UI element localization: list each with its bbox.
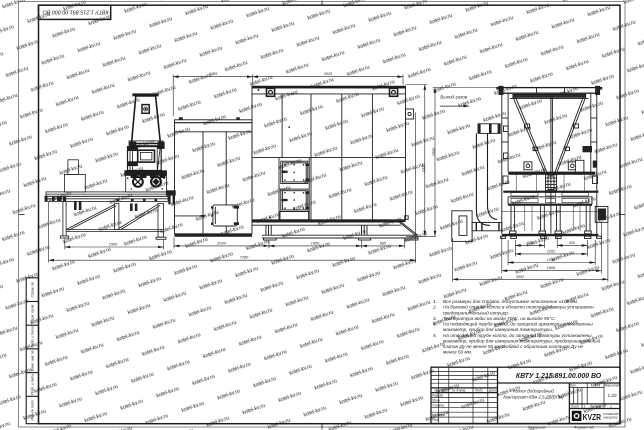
svg-text:Утв.: Утв. — [432, 418, 439, 422]
svg-text:КУЗНЕЦКИЙ: КУЗНЕЦКИЙ — [603, 412, 619, 416]
svg-text:685: 685 — [380, 241, 387, 245]
svg-text:Разраб.: Разраб. — [432, 394, 444, 398]
svg-text:630: 630 — [527, 241, 534, 245]
svg-text:2034: 2034 — [216, 241, 225, 245]
svg-text:Температура воды на входе 70°С: Температура воды на входе 70°С, на выход… — [443, 316, 556, 321]
svg-text:Листов: Листов — [589, 405, 602, 409]
svg-text:На подводящей трубе котла, до: На подводящей трубе котла, до запорной а… — [443, 321, 593, 327]
svg-text:№ докум.: № докум. — [452, 389, 466, 393]
svg-text:1: 1 — [610, 405, 612, 409]
svg-text:Масштаб: Масштаб — [605, 384, 620, 388]
svg-text:1485: 1485 — [209, 72, 218, 76]
svg-text:Подп. и дата: Подп. и дата — [31, 326, 35, 347]
svg-text:КВТУ 1.215.891.00.000 ВО: КВТУ 1.215.891.00.000 ВО — [516, 373, 602, 380]
svg-text:манометр, прибор для измерения: манометр, прибор для измерения температу… — [443, 327, 553, 332]
svg-text:1950: 1950 — [311, 241, 320, 245]
svg-text:Взам. инв. №: Взам. инв. № — [31, 350, 35, 371]
svg-text:Лист: Лист — [440, 389, 450, 393]
svg-text:Перв. прим.: Перв. прим. — [31, 304, 35, 323]
svg-text:Т.контр.: Т.контр. — [432, 403, 445, 407]
svg-text:2950: 2950 — [432, 147, 436, 157]
svg-text:На боковой стенке котла в обла: На боковой стенке котла в области топочн… — [443, 304, 594, 310]
svg-text:1906: 1906 — [547, 266, 556, 270]
svg-text:Лист: Лист — [570, 405, 580, 409]
svg-text:Масса: Масса — [591, 384, 601, 388]
svg-text:630: 630 — [569, 241, 576, 245]
svg-text:предохранительный штуцер.: предохранительный штуцер. — [443, 309, 509, 315]
svg-text:1.: 1. — [433, 299, 437, 304]
svg-text:4.: 4. — [433, 322, 437, 327]
svg-text:Все размеры для справок, допус: Все размеры для справок, допустимое откл… — [443, 299, 578, 304]
svg-text:1:20: 1:20 — [608, 393, 617, 398]
svg-text:Подп.: Подп. — [475, 389, 484, 393]
svg-text:КовАгрегат-КВм-2,5-ДВ(ВПМ): КовАгрегат-КВм-2,5-ДВ(ВПМ) — [503, 395, 564, 400]
svg-text:Подп. и дата: Подп. и дата — [31, 374, 35, 395]
svg-text:1538: 1538 — [547, 258, 556, 262]
svg-text:Инв. № подл.: Инв. № подл. — [31, 399, 35, 420]
svg-text:менее 50 мм.: менее 50 мм. — [443, 350, 472, 355]
svg-text:3052: 3052 — [516, 275, 525, 279]
svg-text:манометр, прибор для измерения: манометр, прибор для измерения температу… — [443, 337, 601, 343]
svg-text:Котел Водогрейный: Котел Водогрейный — [513, 389, 554, 394]
svg-text:Лит.: Лит. — [568, 384, 577, 388]
svg-text:клапан Ду не менее 50 мм и обв: клапан Ду не менее 50 мм и обвод с обрат… — [443, 344, 584, 349]
svg-text:Копировал: Копировал — [528, 425, 546, 429]
svg-text:1: 1 — [584, 405, 586, 409]
svg-text:Н.контр.: Н.контр. — [432, 413, 446, 417]
svg-text:3.: 3. — [433, 316, 437, 321]
svg-text:7280: 7280 — [240, 256, 249, 260]
svg-text:На отводящей трубе котла, до з: На отводящей трубе котла, до запорной ар… — [443, 332, 592, 338]
svg-text:Формат А2: Формат А2 — [574, 425, 594, 429]
svg-text:Справ. №: Справ. № — [31, 282, 35, 298]
svg-text:Дата: Дата — [488, 389, 498, 393]
svg-text:3025: 3025 — [324, 72, 333, 76]
svg-text:5.: 5. — [433, 333, 437, 338]
svg-text:ЗАВОД РЕЗ.: ЗАВОД РЕЗ. — [603, 416, 618, 420]
svg-text:1262: 1262 — [547, 249, 556, 253]
svg-text:КВТУ 1.215.891.00.000 ВО: КВТУ 1.215.891.00.000 ВО — [42, 8, 109, 14]
svg-text:2.: 2. — [432, 305, 437, 310]
svg-text:1560: 1560 — [109, 243, 118, 247]
svg-text:Выход газов: Выход газов — [440, 95, 467, 100]
svg-text:2335: 2335 — [422, 163, 426, 173]
svg-text:KVZR: KVZR — [583, 413, 602, 422]
svg-text:Пров.: Пров. — [432, 399, 441, 403]
